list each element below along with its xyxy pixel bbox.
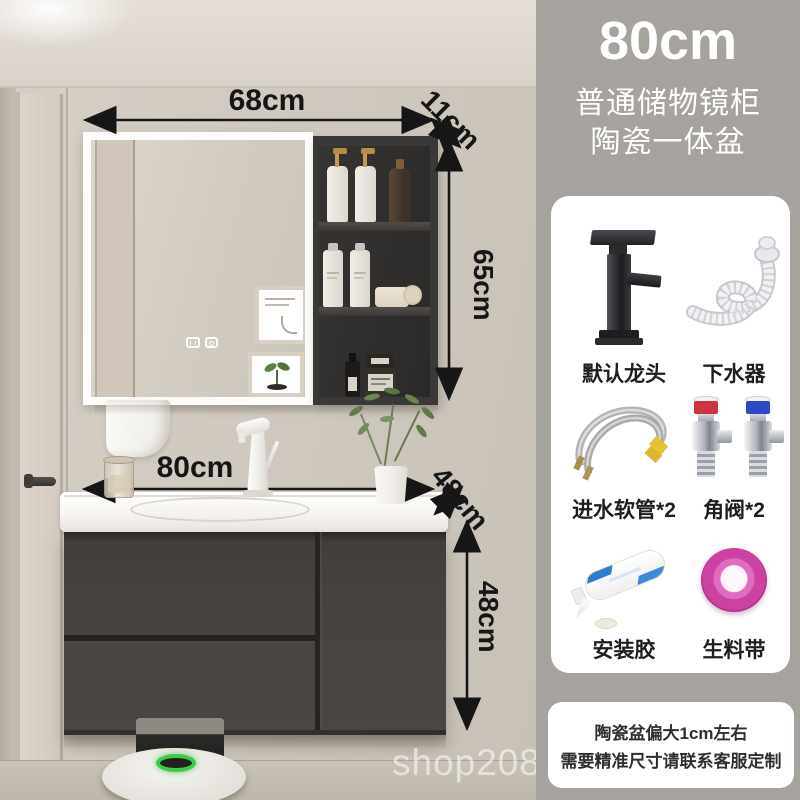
plant-leaf [380, 415, 395, 422]
plant-leaf [364, 392, 381, 401]
panel-title: 80cm [536, 10, 800, 72]
glue-disc [595, 618, 617, 629]
plant-leaf [415, 423, 429, 439]
accessory-item-hoses: 进水软管*2 [569, 392, 679, 520]
faucet-spout-tip [237, 428, 246, 444]
valve-cap-red [694, 401, 718, 414]
valves-product-image [679, 392, 789, 490]
valve-stem [749, 451, 767, 477]
faucet-spout-arm [626, 272, 661, 287]
panel-subtitle-2: 陶瓷一体盆 [536, 117, 800, 161]
glue-label-line [608, 567, 641, 583]
plant-stem [384, 404, 395, 466]
accessory-label: 下水器 [669, 358, 799, 384]
faucet-top-plate [590, 230, 656, 245]
valve-blue [739, 396, 785, 488]
glue-product-image [569, 536, 679, 630]
valve-red [687, 396, 733, 488]
plant-leaf [420, 405, 436, 420]
faucet-foot-base [595, 338, 643, 345]
hoses-product-image [569, 392, 679, 490]
jar-content [108, 475, 130, 493]
plant-stem [360, 414, 382, 465]
accessory-item-drain: 下水器 [679, 212, 789, 384]
plant-stem [394, 410, 420, 461]
valve-outlet [769, 430, 784, 443]
faucet-column [607, 254, 631, 332]
valve-body [744, 421, 772, 451]
accessory-item-faucet: 默认龙头 [569, 212, 679, 384]
product-detail-image: 68cm 11cm 65cm 80cm 48cm 48cm shop208925… [0, 0, 800, 800]
valve-body [692, 421, 720, 451]
glue-label-stripe [637, 564, 669, 590]
glass-jar [104, 460, 134, 498]
accessory-item-valves: 角阀*2 [679, 392, 789, 520]
dimension-label-vanity-height: 48cm [472, 581, 504, 653]
faucet-neck [609, 245, 627, 254]
dimension-label-vanity-width: 80cm [140, 451, 250, 485]
drain-product-image [679, 212, 789, 352]
accessories-card: 默认龙头 下水器 [551, 196, 790, 673]
note-line-1: 陶瓷盆偏大1cm左右 [548, 719, 794, 744]
note-line-2: 需要精准尺寸请联系客服定制 [548, 747, 794, 772]
valve-neck [698, 414, 714, 421]
glue-tube [580, 545, 669, 604]
faucet-product-image [569, 212, 679, 352]
note-card: 陶瓷盆偏大1cm左右 需要精准尺寸请联系客服定制 [548, 702, 794, 788]
tape-product-image [679, 536, 789, 630]
tape-ring [701, 548, 767, 612]
valve-cap-blue [746, 401, 770, 414]
valve-neck [750, 414, 766, 421]
faucet-base [243, 490, 273, 497]
vase [372, 466, 410, 504]
faucet-handle [265, 440, 280, 469]
info-panel: 80cm 普通储物镜柜 陶瓷一体盆 默认龙头 [536, 0, 800, 800]
accessory-label: 角阀*2 [669, 494, 799, 520]
accessory-label: 生料带 [669, 634, 799, 660]
accessory-item-tape: 生料带 [679, 536, 789, 660]
accessory-item-glue: 安装胶 [569, 536, 679, 660]
dimension-label-mirror-width: 68cm [212, 84, 322, 118]
panel-subtitle-1: 普通储物镜柜 [536, 78, 800, 122]
plant-leaf [384, 387, 401, 396]
dimension-label-mirror-height: 65cm [467, 249, 499, 321]
watermark: shop208925 [392, 742, 536, 784]
valve-outlet [717, 430, 732, 443]
glass-jar-lid [103, 456, 135, 464]
plant-leaf [404, 392, 421, 405]
valve-stem [697, 451, 715, 477]
bathroom-scene: 68cm 11cm 65cm 80cm 48cm 48cm shop208925 [0, 0, 536, 800]
